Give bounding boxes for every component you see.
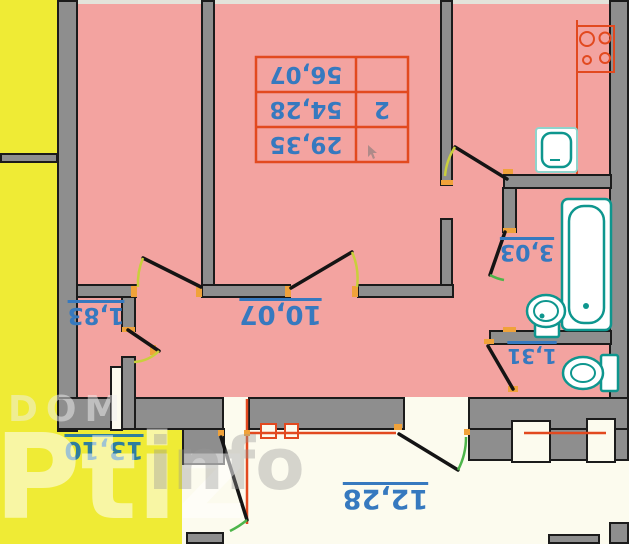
area-table-row-total-with-balcony: 56,07 <box>256 57 356 92</box>
wall-bath-left <box>502 187 517 233</box>
room-label-balcony: 12,28 <box>318 476 453 522</box>
wall-site-fence <box>0 153 58 163</box>
room-label-wc: 1,31 <box>498 339 566 373</box>
wall-bedroom-living <box>201 0 215 289</box>
wall-right-outer <box>609 0 629 432</box>
wall-living-corner <box>440 218 453 288</box>
wall-hall-top-right <box>357 284 454 298</box>
wall-kitchen-bath <box>503 174 612 189</box>
floor-plan-canvas: 56,07 54,28 29,35 2 10,07 1,83 3,03 1,31… <box>0 0 629 544</box>
wall-living-kitchen <box>440 0 453 186</box>
area-table-row-living: 29,35 <box>256 127 356 162</box>
outside-yellow-left <box>0 0 57 432</box>
top-crop-strip <box>57 0 629 4</box>
watermark-info: info <box>148 428 305 500</box>
wall-left-outer <box>57 0 78 432</box>
room-label-bathroom: 3,03 <box>486 233 568 271</box>
facade-notch-2 <box>586 418 616 463</box>
wall-post-right <box>548 534 600 544</box>
room-label-hallway: 10,07 <box>228 293 333 335</box>
wall-post-corner <box>609 522 629 544</box>
area-table-rooms-count: 2 <box>356 92 408 127</box>
room-label-closet: 1,83 <box>60 295 132 335</box>
facade-notch-1 <box>511 420 551 463</box>
area-table-row-total: 54,28 <box>256 92 356 127</box>
